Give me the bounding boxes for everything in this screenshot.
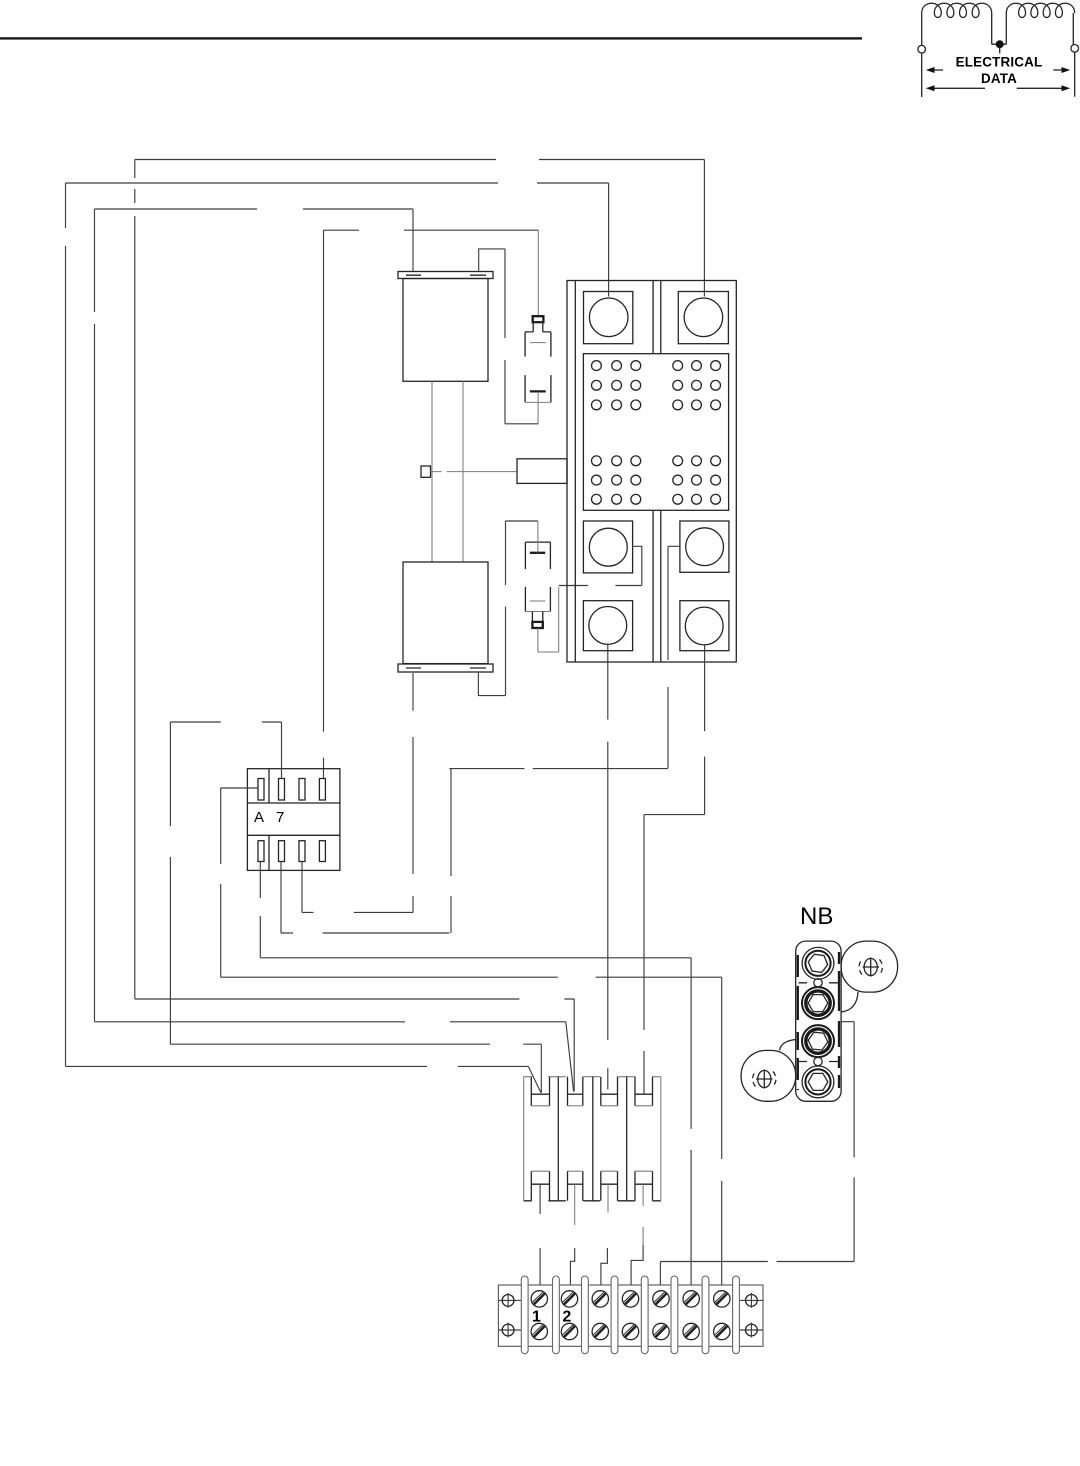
svg-text:2: 2: [562, 1309, 571, 1326]
svg-text:NB: NB: [800, 903, 833, 930]
svg-text:ELECTRICAL: ELECTRICAL: [956, 55, 1043, 70]
svg-text:DATA: DATA: [981, 71, 1017, 86]
svg-text:1: 1: [532, 1309, 541, 1326]
svg-text:7: 7: [276, 809, 284, 826]
svg-text:A: A: [254, 809, 264, 826]
